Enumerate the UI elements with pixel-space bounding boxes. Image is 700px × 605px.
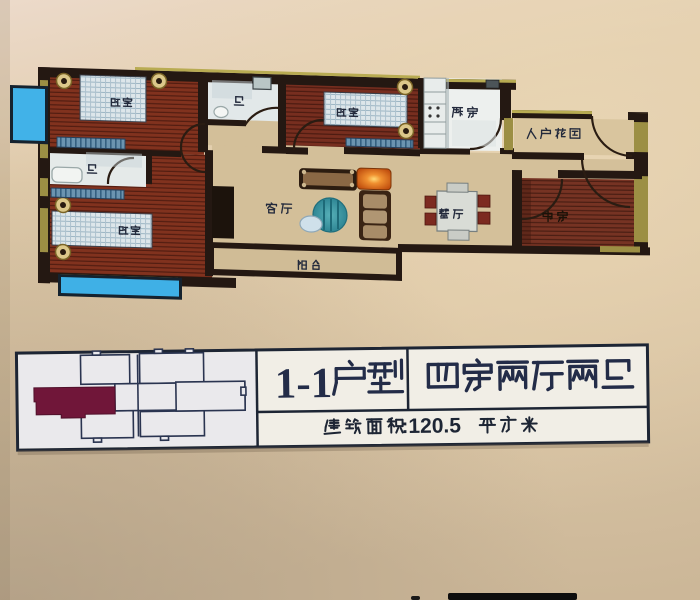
svg-text::120.5: :120.5 bbox=[401, 414, 461, 438]
svg-text:1-1: 1-1 bbox=[275, 360, 333, 408]
